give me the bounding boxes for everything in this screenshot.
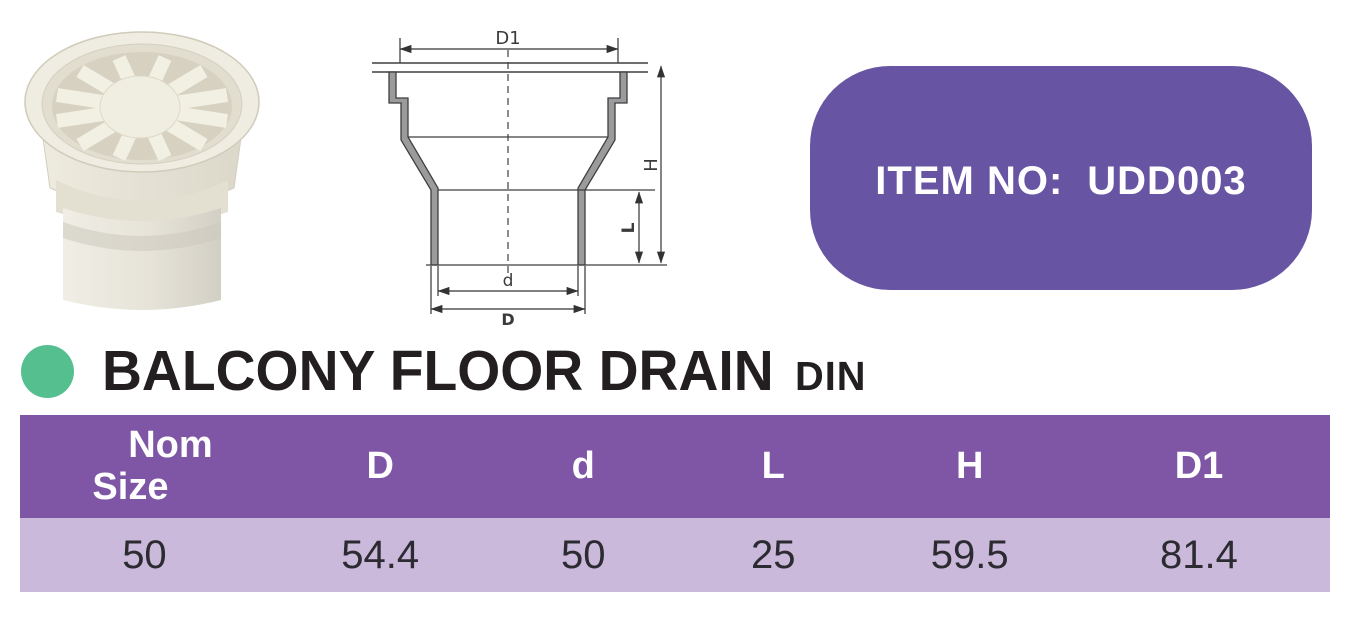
flange-lines	[372, 63, 648, 72]
standard-name: DIN	[795, 353, 866, 399]
item-number-value: UDD003	[1087, 159, 1246, 204]
dimensions-table: Nom Size D d L H D1 50 54.4 50 25 59.5 8…	[20, 415, 1330, 592]
product-name: BALCONY FLOOR DRAIN	[102, 339, 774, 403]
technical-diagram: D1 d D	[353, 4, 693, 326]
drain-grate	[25, 32, 259, 172]
cell-h: 59.5	[871, 518, 1068, 592]
header-nom-size: Nom Size	[20, 415, 269, 518]
table-row: 50 54.4 50 25 59.5 81.4	[20, 518, 1330, 592]
label-h: H	[641, 158, 662, 172]
title-row: BALCONY FLOOR DRAINDIN	[21, 336, 1321, 406]
item-number-badge: ITEM NO: UDD003	[810, 66, 1312, 290]
label-d1: D1	[495, 28, 520, 49]
catalog-page: D1 d D	[0, 0, 1347, 622]
product-photo	[18, 12, 298, 317]
label-d-inner: d	[503, 271, 514, 291]
cell-d1: 81.4	[1068, 518, 1330, 592]
label-l: L	[619, 222, 639, 233]
reference-lines	[408, 137, 667, 265]
table-header-row: Nom Size D d L H D1	[20, 415, 1330, 518]
cell-nom-size: 50	[20, 518, 269, 592]
cell-d-inner: 50	[492, 518, 675, 592]
cell-d-outer: 54.4	[269, 518, 492, 592]
page-title: BALCONY FLOOR DRAINDIN	[102, 338, 866, 404]
green-bullet-icon	[21, 345, 74, 398]
item-number-label: ITEM NO:	[875, 159, 1063, 204]
label-d-outer: D	[501, 310, 514, 326]
header-d1: D1	[1068, 415, 1330, 518]
header-d-inner: d	[492, 415, 675, 518]
header-d-outer: D	[269, 415, 492, 518]
header-h: H	[871, 415, 1068, 518]
header-l: L	[675, 415, 872, 518]
cell-l: 25	[675, 518, 872, 592]
